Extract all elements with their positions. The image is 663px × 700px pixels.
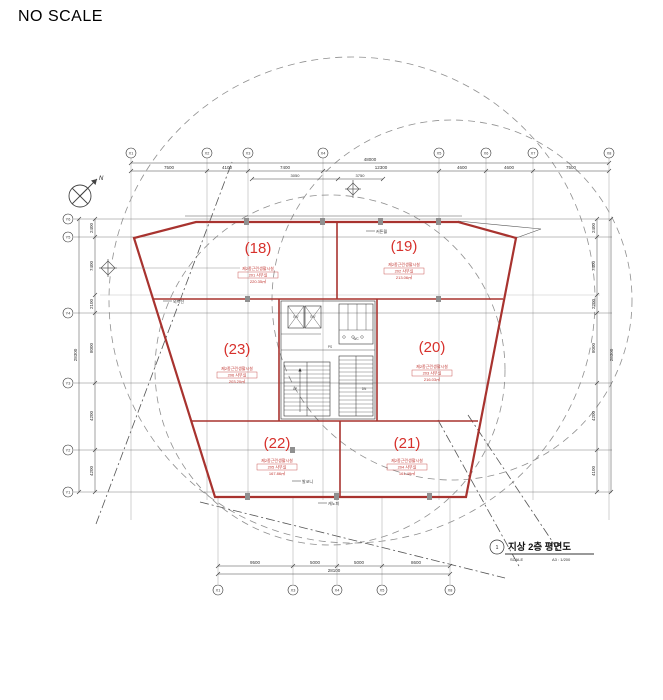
diamond-marker-left xyxy=(99,259,240,277)
dim: 7400 xyxy=(89,260,94,271)
room-23: (23) 제2종근린생활시설 206 사무실 203.20㎡ xyxy=(217,341,257,384)
room-20-type: 제2종근린생활시설 xyxy=(416,363,448,369)
ev2-label: E/V xyxy=(310,315,316,319)
grid-bubbles-bottom-text: X1 X3 X4 X5 X8 xyxy=(216,589,453,593)
room-18: (18) 제2종근린생활시설 201 사무실 220.35㎡ xyxy=(238,240,278,284)
grid-label: X8 xyxy=(448,589,453,593)
dim: 9500 xyxy=(250,560,261,565)
room-18-number: (18) xyxy=(245,240,272,257)
north-arrow-icon: N xyxy=(69,176,104,207)
dim-right-total: 28300 xyxy=(609,348,614,361)
room-21-number: (21) xyxy=(394,435,421,452)
floor-plan-drawing: E/V E/V WC PS UP DN (18) 제2종근린생활시설 201 사… xyxy=(0,0,663,700)
dn-label: DN xyxy=(362,387,367,391)
room-20: (20) 제2종근린생활시설 203 사무실 216.03㎡ xyxy=(412,339,452,382)
grid-label: X8 xyxy=(607,152,612,156)
annotation: 커튼월 xyxy=(376,228,387,234)
interior-partitions xyxy=(153,222,503,497)
grid-label: X3 xyxy=(291,589,296,593)
room-21-unit: 204 사무실 xyxy=(398,464,417,470)
grid-lines-horizontal xyxy=(74,219,612,492)
grid-label: X1 xyxy=(129,152,134,156)
grid-label: X6 xyxy=(484,152,489,156)
room-19-unit: 202 사무실 xyxy=(395,268,414,274)
grid-label: X4 xyxy=(321,152,326,156)
grid-label: X5 xyxy=(380,589,385,593)
dim: 3750 xyxy=(356,173,366,178)
room-21: (21) 제2종근린생활시설 204 사무실 161.49㎡ xyxy=(387,435,427,476)
grid-label: X5 xyxy=(437,152,442,156)
dim: 7400 xyxy=(280,165,291,170)
room-22-unit: 205 사무실 xyxy=(268,464,287,470)
room-20-number: (20) xyxy=(419,339,446,356)
dim: 5000 xyxy=(310,560,321,565)
stair-right xyxy=(339,356,373,416)
dimension-top-text: 48000 7500 4100 7400 12300 4600 4600 750… xyxy=(164,157,577,178)
wc-label: WC xyxy=(353,337,359,341)
diamond-marker-top xyxy=(345,180,361,198)
dim: 4200 xyxy=(89,465,94,476)
room-18-type: 제2종근린생활시설 xyxy=(242,265,274,271)
room-22-area: 167.86㎡ xyxy=(269,470,285,476)
grid-label: X3 xyxy=(246,152,251,156)
dim: 7500 xyxy=(566,165,577,170)
dim-bottom-total: 28100 xyxy=(328,568,341,573)
grid-label: X4 xyxy=(335,589,340,593)
dim: 8600 xyxy=(411,560,422,565)
room-18-area: 220.35㎡ xyxy=(250,278,266,284)
dim-left-total: 28300 xyxy=(73,348,78,361)
dim: 2100 xyxy=(89,298,94,309)
dimension-left xyxy=(77,217,97,494)
annotation: 발코니 xyxy=(302,478,313,484)
room-19-type: 제2종근린생활시설 xyxy=(388,261,420,267)
dimension-left-text: 28300 2400 7400 2100 8000 4200 4200 xyxy=(73,222,94,476)
room-18-unit: 201 사무실 xyxy=(249,272,268,278)
dim: 12300 xyxy=(375,165,388,170)
grid-label: X7 xyxy=(531,152,536,156)
dim: 4600 xyxy=(504,165,515,170)
room-21-area: 161.49㎡ xyxy=(399,470,415,476)
dimension-bottom-text: 9500 5000 5000 8600 28100 xyxy=(250,560,422,573)
dim: 5000 xyxy=(354,560,365,565)
up-label: UP xyxy=(293,387,297,391)
grid-bubbles-left xyxy=(63,214,73,497)
dimension-right-text: 28300 2400 7400 2200 8000 4200 4100 xyxy=(591,222,614,476)
room-23-type: 제2종근린생활시설 xyxy=(221,365,253,371)
grid-label: X1 xyxy=(216,589,221,593)
dim: 2400 xyxy=(591,222,596,233)
room-23-area: 203.20㎡ xyxy=(229,378,245,384)
dimension-top xyxy=(129,161,611,181)
annotation: 캐노피 xyxy=(328,500,339,506)
ev1-label: E/V xyxy=(293,315,299,319)
grid-bubbles-top-text: X1 X2 X3 X4 X5 X6 X7 X8 xyxy=(129,152,612,156)
drawing-title: 지상 2층 평면도 xyxy=(508,541,571,553)
dim: 2200 xyxy=(591,298,596,309)
room-20-unit: 203 사무실 xyxy=(423,370,442,376)
dim: 8000 xyxy=(89,342,94,353)
dim: 4100 xyxy=(591,465,596,476)
adjacent-outline xyxy=(185,216,541,238)
room-21-type: 제2종근린생활시설 xyxy=(391,457,423,463)
grid-label: Y5 xyxy=(66,236,71,240)
dim: 4200 xyxy=(591,410,596,421)
dim: 8000 xyxy=(591,342,596,353)
room-23-number: (23) xyxy=(224,341,251,358)
annotation: 외벽선 xyxy=(173,298,184,304)
dim-top-total: 48000 xyxy=(364,157,377,162)
ps-label: PS xyxy=(328,345,332,349)
dim: 4100 xyxy=(222,165,233,170)
north-label: N xyxy=(99,176,104,182)
room-22-type: 제2종근린생활시설 xyxy=(261,457,293,463)
title-number: 1 xyxy=(496,545,499,551)
dim: 4600 xyxy=(457,165,468,170)
room-19-number: (19) xyxy=(391,238,418,255)
grid-label: X2 xyxy=(205,152,210,156)
title-scale-label: SCALE xyxy=(510,557,523,562)
grid-label: Y3 xyxy=(66,382,71,386)
title-scale-value: A3 : 1/200 xyxy=(552,557,571,562)
room-20-area: 216.03㎡ xyxy=(424,376,440,382)
room-23-unit: 206 사무실 xyxy=(228,372,247,378)
dim: 3050 xyxy=(291,173,301,178)
room-22-number: (22) xyxy=(264,435,291,452)
grid-label: Y2 xyxy=(66,449,71,453)
dim: 4200 xyxy=(89,410,94,421)
room-19-area: 213.06㎡ xyxy=(396,274,412,280)
title-block: 1 지상 2층 평면도 SCALE A3 : 1/200 xyxy=(490,540,594,562)
grid-label: Y6 xyxy=(66,218,71,222)
dim: 2400 xyxy=(89,222,94,233)
grid-label: Y1 xyxy=(66,491,71,495)
dim: 7400 xyxy=(591,260,596,271)
grid-label: Y4 xyxy=(66,312,71,316)
dim: 7500 xyxy=(164,165,175,170)
room-19: (19) 제2종근린생활시설 202 사무실 213.06㎡ xyxy=(384,238,424,280)
room-22: (22) 제2종근린생활시설 205 사무실 167.86㎡ xyxy=(257,435,297,476)
